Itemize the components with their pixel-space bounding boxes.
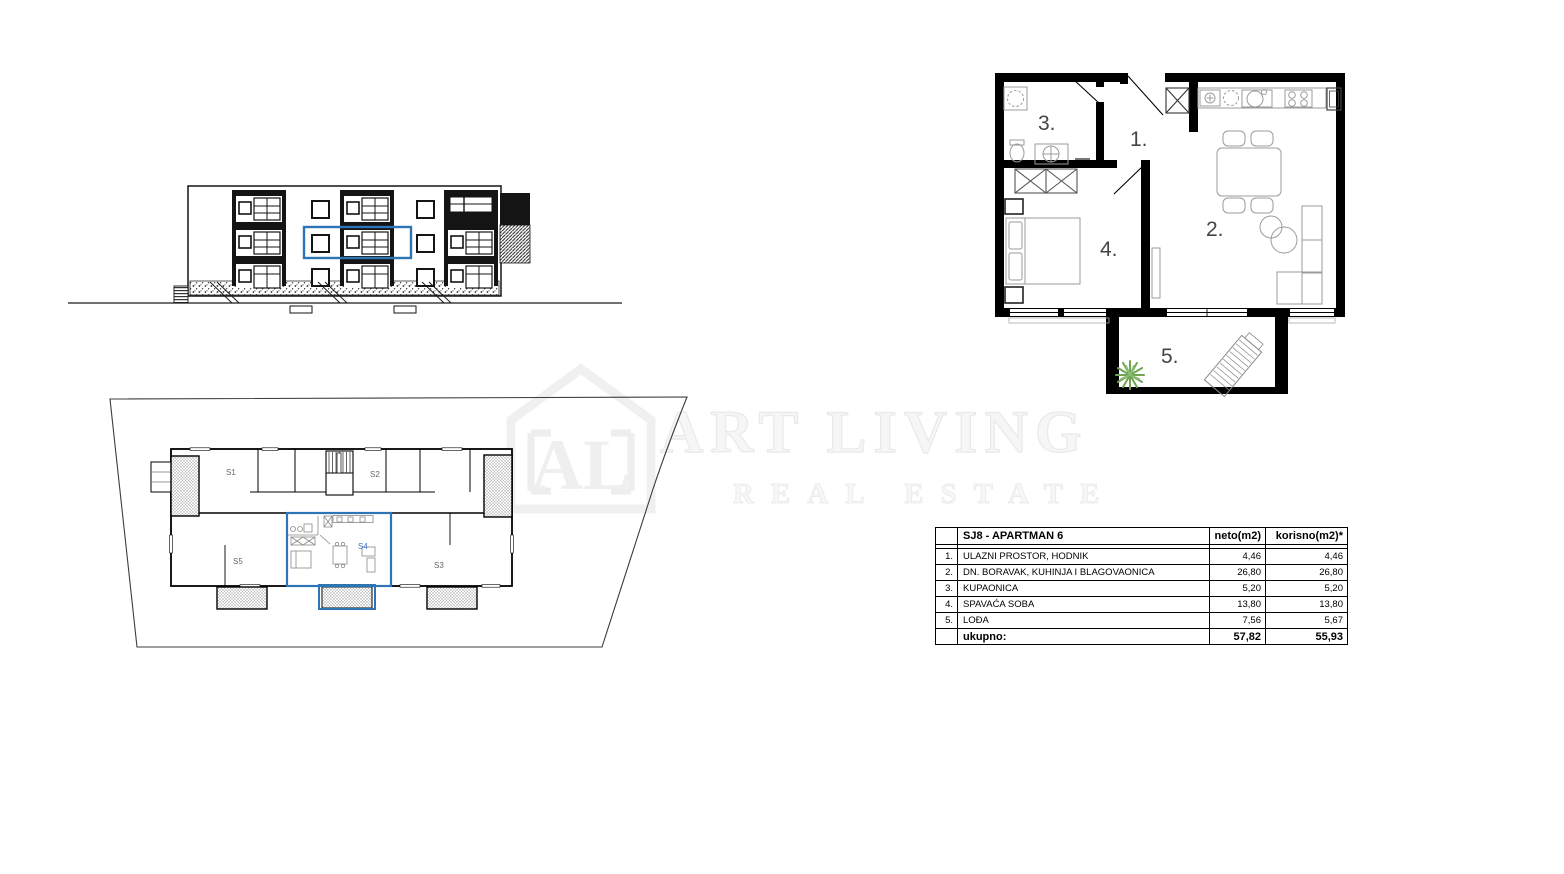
row-name: LOĐA [958,613,1210,629]
total-num-cell [936,629,958,645]
header-num-cell [936,528,958,545]
room-label-loggia: 5. [1161,345,1179,368]
sofa-icon [1277,206,1322,304]
building-elevation-drawing [60,170,640,320]
stairwell [326,451,353,495]
unit-label-s4: S4 [358,542,368,551]
row-korisno: 4,46 [1266,549,1348,565]
row-neto: 4,46 [1210,549,1266,565]
row-num: 5. [936,613,958,629]
table-row: 1. ULAZNI PROSTOR, HODNIK 4,46 4,46 [936,549,1348,565]
row-num: 4. [936,597,958,613]
area-table: SJ8 - APARTMAN 6 neto(m2) korisno(m2)* 1… [935,527,1348,645]
row-num: 3. [936,581,958,597]
window-column-c [444,190,498,288]
room-label-living: 2. [1206,218,1224,241]
col-header-neto: neto(m2) [1210,528,1266,545]
window-column-a [232,190,286,288]
loggia-items [1116,330,1266,397]
total-korisno: 55,93 [1266,629,1348,645]
row-neto: 26,80 [1210,565,1266,581]
total-neto: 57,82 [1210,629,1266,645]
nightstand [1005,199,1023,214]
entry-closet-icon [1166,88,1189,113]
room-label-bathroom: 3. [1038,112,1056,135]
table-total-row: ukupno: 57,82 55,93 [936,629,1348,645]
room-label-hallway: 1. [1130,128,1148,151]
site-plan-drawing: S1 S2 S3 S4 S5 [90,385,710,655]
room-label-bedroom: 4. [1100,238,1118,261]
nightstand [1005,287,1023,303]
table-header-row: SJ8 - APARTMAN 6 neto(m2) korisno(m2)* [936,528,1348,545]
dining-table-icon [1217,131,1281,213]
col-header-korisno: korisno(m2)* [1266,528,1348,545]
side-volume [500,193,530,263]
window-column-b [340,190,394,288]
unit-label-s1: S1 [226,468,236,477]
row-korisno: 26,80 [1266,565,1348,581]
kitchen-counter [1198,88,1341,110]
wardrobe-icon [1015,169,1077,193]
row-korisno: 5,20 [1266,581,1348,597]
row-korisno: 13,80 [1266,597,1348,613]
table-row: 5. LOĐA 7,56 5,67 [936,613,1348,629]
row-num: 2. [936,565,958,581]
row-neto: 7,56 [1210,613,1266,629]
row-num: 1. [936,549,958,565]
row-name: KUPAONICA [958,581,1210,597]
watermark-subtitle-text: REAL ESTATE [733,478,1116,511]
lounge-chair-icon [1204,330,1266,397]
row-name: DN. BORAVAK, KUHINJA I BLAGOVAONICA [958,565,1210,581]
plant-icon [1116,361,1144,389]
unit-label-s5: S5 [233,557,243,566]
table-row: 2. DN. BORAVAK, KUHINJA I BLAGOVAONICA 2… [936,565,1348,581]
row-neto: 13,80 [1210,597,1266,613]
table-row: 4. SPAVAĆA SOBA 13,80 13,80 [936,597,1348,613]
tv-bench [1152,248,1160,298]
real-estate-plan-sheet: AL ART LIVING REAL ESTATE [0,0,1564,874]
row-name: SPAVAĆA SOBA [958,597,1210,613]
row-korisno: 5,67 [1266,613,1348,629]
row-name: ULAZNI PROSTOR, HODNIK [958,549,1210,565]
unit-label-s2: S2 [370,470,380,479]
table-row: 3. KUPAONICA 5,20 5,20 [936,581,1348,597]
stove-icon [1285,90,1312,107]
apartment-floor-plan: 3. 1. 2. 4. 5. [980,60,1360,410]
coffee-table-icon [1260,216,1282,238]
unit-label-s3: S3 [434,561,444,570]
total-label: ukupno: [958,629,1210,645]
row-neto: 5,20 [1210,581,1266,597]
bed-icon [1006,218,1080,284]
bedroom-furniture [1005,169,1160,303]
table-title: SJ8 - APARTMAN 6 [958,528,1210,545]
living-room-furniture [1260,206,1322,304]
